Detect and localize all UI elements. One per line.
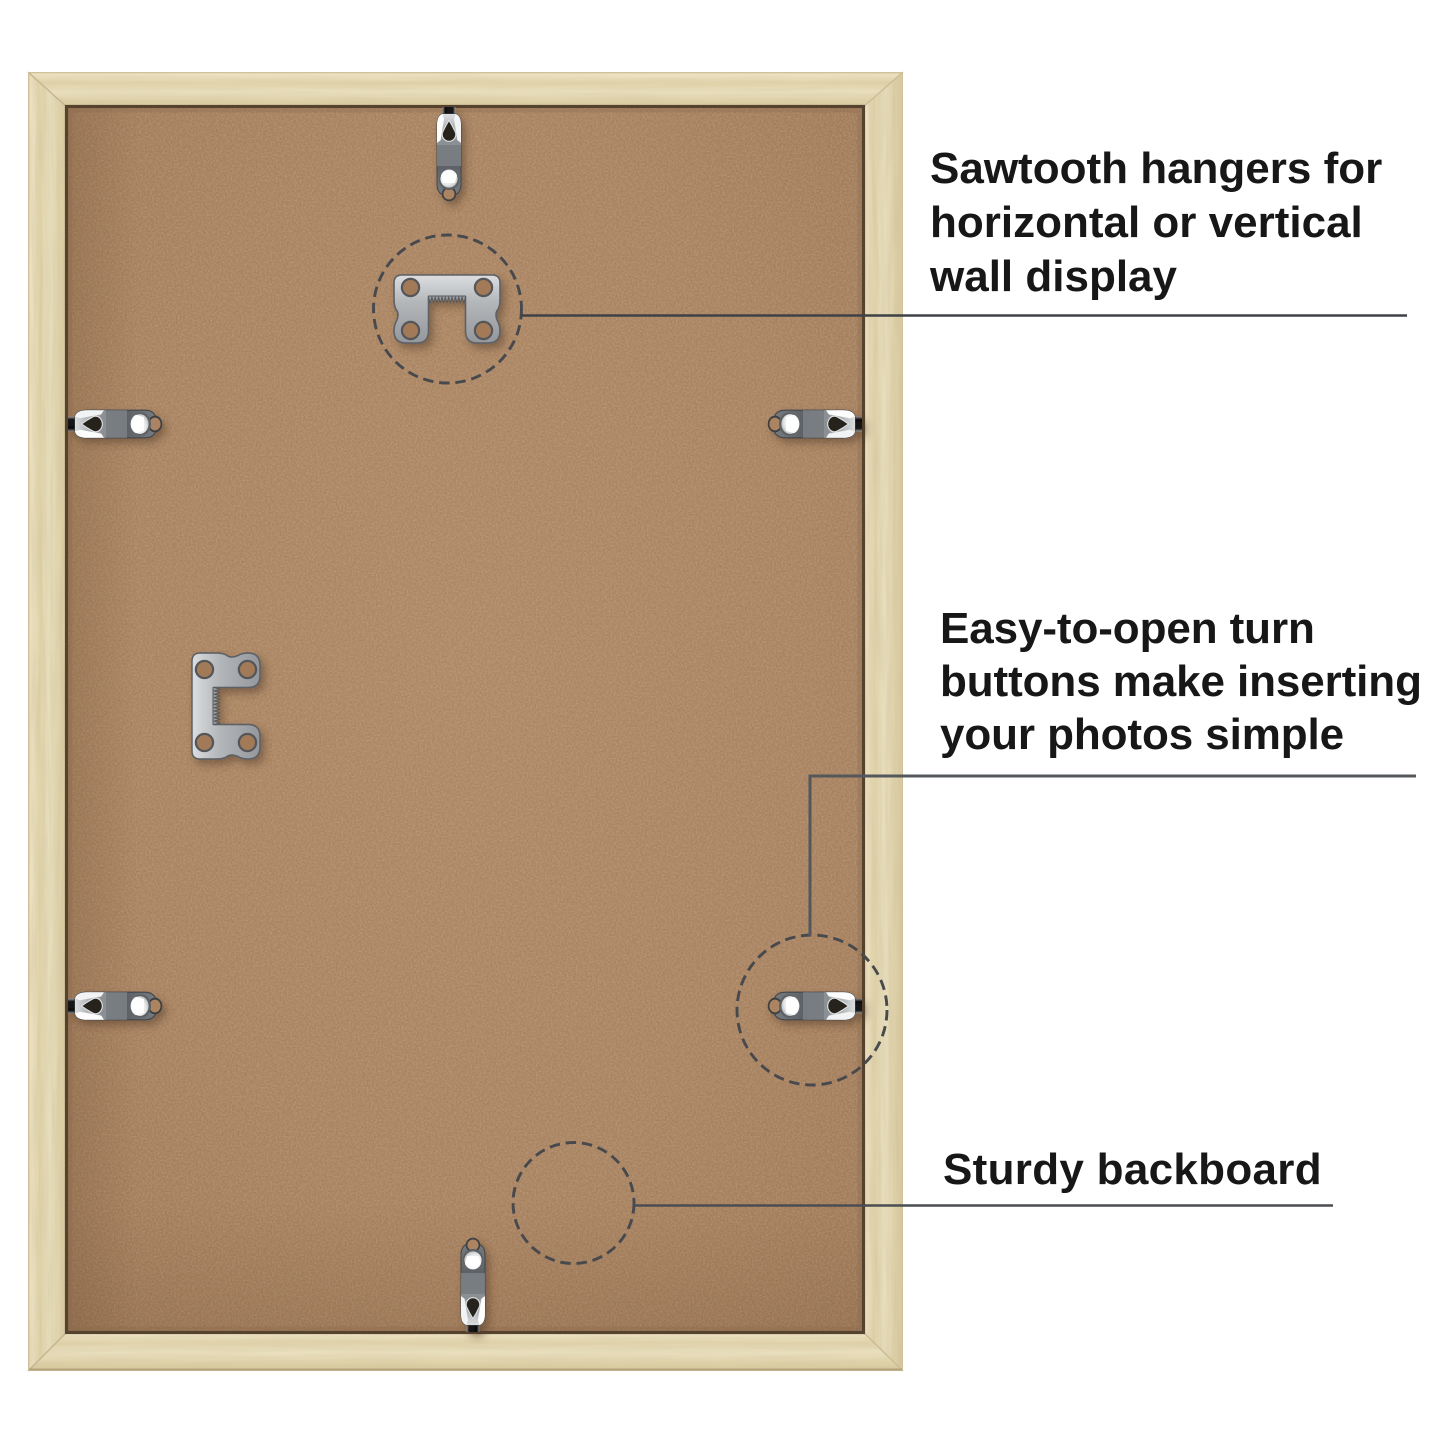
svg-text:wall display: wall display — [929, 252, 1178, 301]
svg-text:Sturdy backboard: Sturdy backboard — [943, 1145, 1322, 1194]
svg-text:Easy-to-open turn: Easy-to-open turn — [940, 604, 1315, 653]
svg-text:Sawtooth hangers for: Sawtooth hangers for — [930, 144, 1382, 193]
svg-text:horizontal or vertical: horizontal or vertical — [930, 198, 1363, 247]
svg-text:your photos simple: your photos simple — [940, 710, 1344, 759]
svg-text:buttons make inserting: buttons make inserting — [940, 657, 1422, 706]
